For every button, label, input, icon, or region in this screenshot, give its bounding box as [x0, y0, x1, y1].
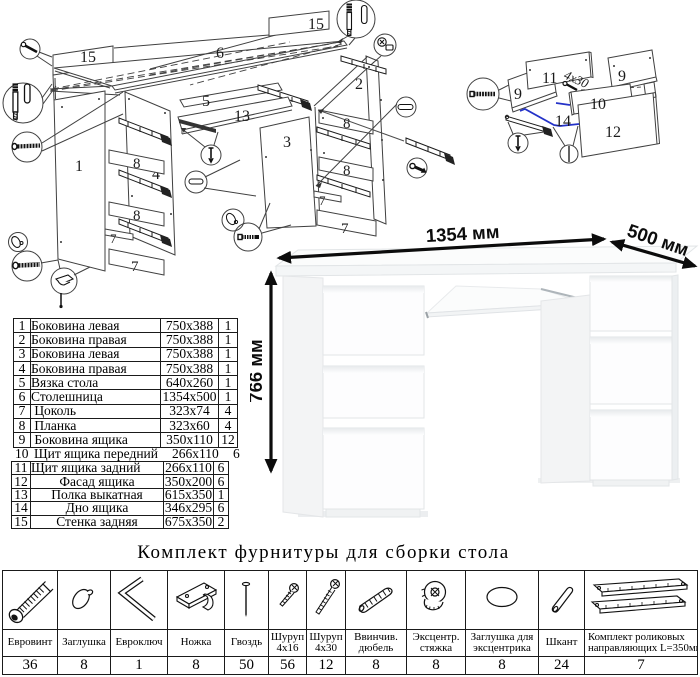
- svg-text:15: 15: [308, 16, 324, 33]
- svg-text:1: 1: [75, 158, 83, 175]
- svg-text:8: 8: [343, 116, 351, 132]
- svg-text:7: 7: [131, 259, 139, 275]
- svg-text:15: 15: [80, 49, 96, 66]
- svg-text:3: 3: [283, 134, 291, 151]
- svg-text:9: 9: [514, 86, 522, 103]
- svg-text:8: 8: [133, 208, 141, 224]
- svg-text:12: 12: [605, 124, 621, 141]
- svg-text:766 мм: 766 мм: [250, 339, 266, 402]
- svg-text:7: 7: [319, 193, 326, 208]
- svg-text:10: 10: [590, 96, 606, 113]
- svg-text:9: 9: [618, 68, 626, 85]
- svg-text:8: 8: [133, 156, 141, 172]
- svg-text:11: 11: [542, 70, 557, 87]
- svg-text:1354 мм: 1354 мм: [425, 221, 500, 246]
- svg-text:6: 6: [216, 45, 224, 62]
- svg-text:7: 7: [110, 231, 117, 246]
- svg-text:13: 13: [234, 108, 250, 125]
- svg-text:14: 14: [555, 113, 571, 130]
- svg-text:8: 8: [343, 163, 351, 179]
- svg-text:5: 5: [202, 93, 210, 110]
